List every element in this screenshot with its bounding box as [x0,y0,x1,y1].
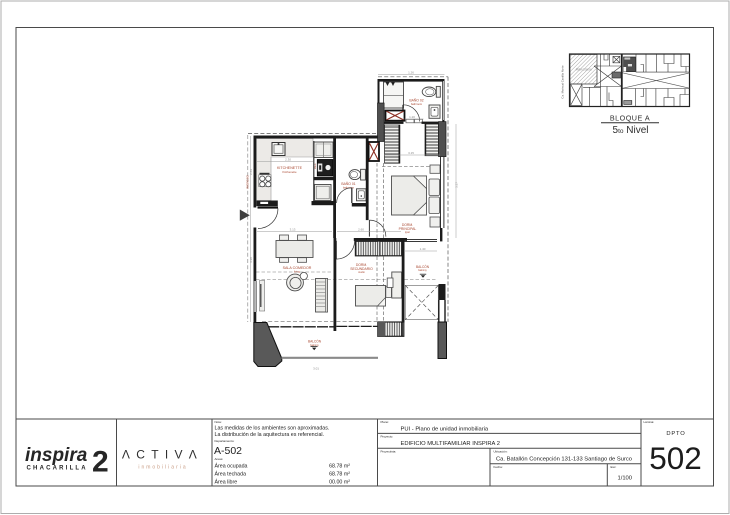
svg-text:DPTO: DPTO [666,431,685,437]
svg-text:1.40: 1.40 [420,247,426,251]
svg-text:inmobiliaria: inmobiliaria [138,465,187,471]
svg-text:3.13: 3.13 [290,228,296,232]
svg-text:CHACARILLA: CHACARILLA [27,466,88,472]
svg-text:3.01: 3.01 [313,367,319,371]
svg-text:1/100: 1/100 [617,475,632,481]
svg-text:BALCÓN: BALCÓN [416,264,430,269]
svg-text:Área ocupada: Área ocupada [215,463,248,470]
svg-text:Las medidas de los ambientes s: Las medidas de los ambientes son aproxim… [215,425,330,431]
svg-text:A-502: A-502 [214,445,242,457]
svg-text:EDIFICIO MULTIFAMILIAR INSPIRA: EDIFICIO MULTIFAMILIAR INSPIRA 2 [401,441,500,447]
svg-text:1.26: 1.26 [408,71,414,75]
svg-text:Kitchenette: Kitchenette [283,170,297,174]
svg-text:ΛCTIVΛ: ΛCTIVΛ [122,448,203,462]
svg-text:2.63: 2.63 [249,169,253,175]
svg-text:Proyectista:: Proyectista: [381,449,397,453]
svg-text:Ca. Mariscal Castilla Norte: Ca. Mariscal Castilla Norte [561,65,565,99]
svg-text:3.38: 3.38 [249,257,253,263]
svg-text:bathroom: bathroom [343,186,355,190]
svg-text:3.15: 3.15 [408,151,414,155]
svg-text:68.78 m²: 68.78 m² [329,472,350,478]
svg-text:La distribución de la aquitect: La distribución de la aquitectura es ref… [215,432,325,438]
svg-text:Proyecto:: Proyecto: [381,434,394,438]
svg-text:inspira: inspira [25,445,88,466]
svg-text:Plano:: Plano: [381,420,390,424]
svg-text:502: 502 [649,440,702,476]
svg-text:Ca. Batallón Concepción 131-13: Ca. Batallón Concepción 131-133 Santiago… [496,456,632,462]
svg-text:2.60: 2.60 [358,228,364,232]
svg-text:PUI - Plano de unidad inmobili: PUI - Plano de unidad inmobiliaria [401,426,489,432]
svg-text:Lámina:: Lámina: [644,420,655,424]
svg-text:BALCÓN: BALCÓN [308,339,322,344]
svg-text:2.30: 2.30 [285,158,291,162]
svg-text:balcony: balcony [418,269,427,272]
svg-text:Área techada: Área techada [215,471,247,478]
svg-text:INGRESO: INGRESO [246,174,250,189]
svg-text:Esc:: Esc: [611,465,617,469]
svg-text:Ubicación:: Ubicación: [494,449,508,453]
svg-text:Areas:: Areas: [215,457,224,461]
svg-text:Fecha:: Fecha: [494,465,503,469]
svg-text:SALA COMEDOR: SALA COMEDOR [283,266,312,270]
svg-text:BLOQUE A: BLOQUE A [610,113,650,122]
svg-text:5to Nivel: 5to Nivel [613,125,649,136]
svg-text:Nota:: Nota: [215,420,222,424]
svg-text:studio: studio [358,271,365,274]
svg-text:Área libre: Área libre [215,478,238,485]
svg-text:ÁREA COMÚN: ÁREA COMÚN [575,69,591,72]
svg-text:BAÑO 02: BAÑO 02 [409,97,423,102]
svg-text:2: 2 [92,446,109,479]
svg-text:68.78 m²: 68.78 m² [329,464,350,470]
svg-text:00.00 m²: 00.00 m² [329,479,350,485]
svg-text:BAÑO 01: BAÑO 01 [341,181,355,186]
svg-text:3.57: 3.57 [455,182,459,188]
svg-text:1.20: 1.20 [409,115,415,119]
svg-text:bathroom: bathroom [411,102,423,106]
svg-text:ppal.: ppal. [405,231,411,234]
svg-text:Departamento:: Departamento: [215,439,235,443]
svg-text:living: living [294,270,300,274]
